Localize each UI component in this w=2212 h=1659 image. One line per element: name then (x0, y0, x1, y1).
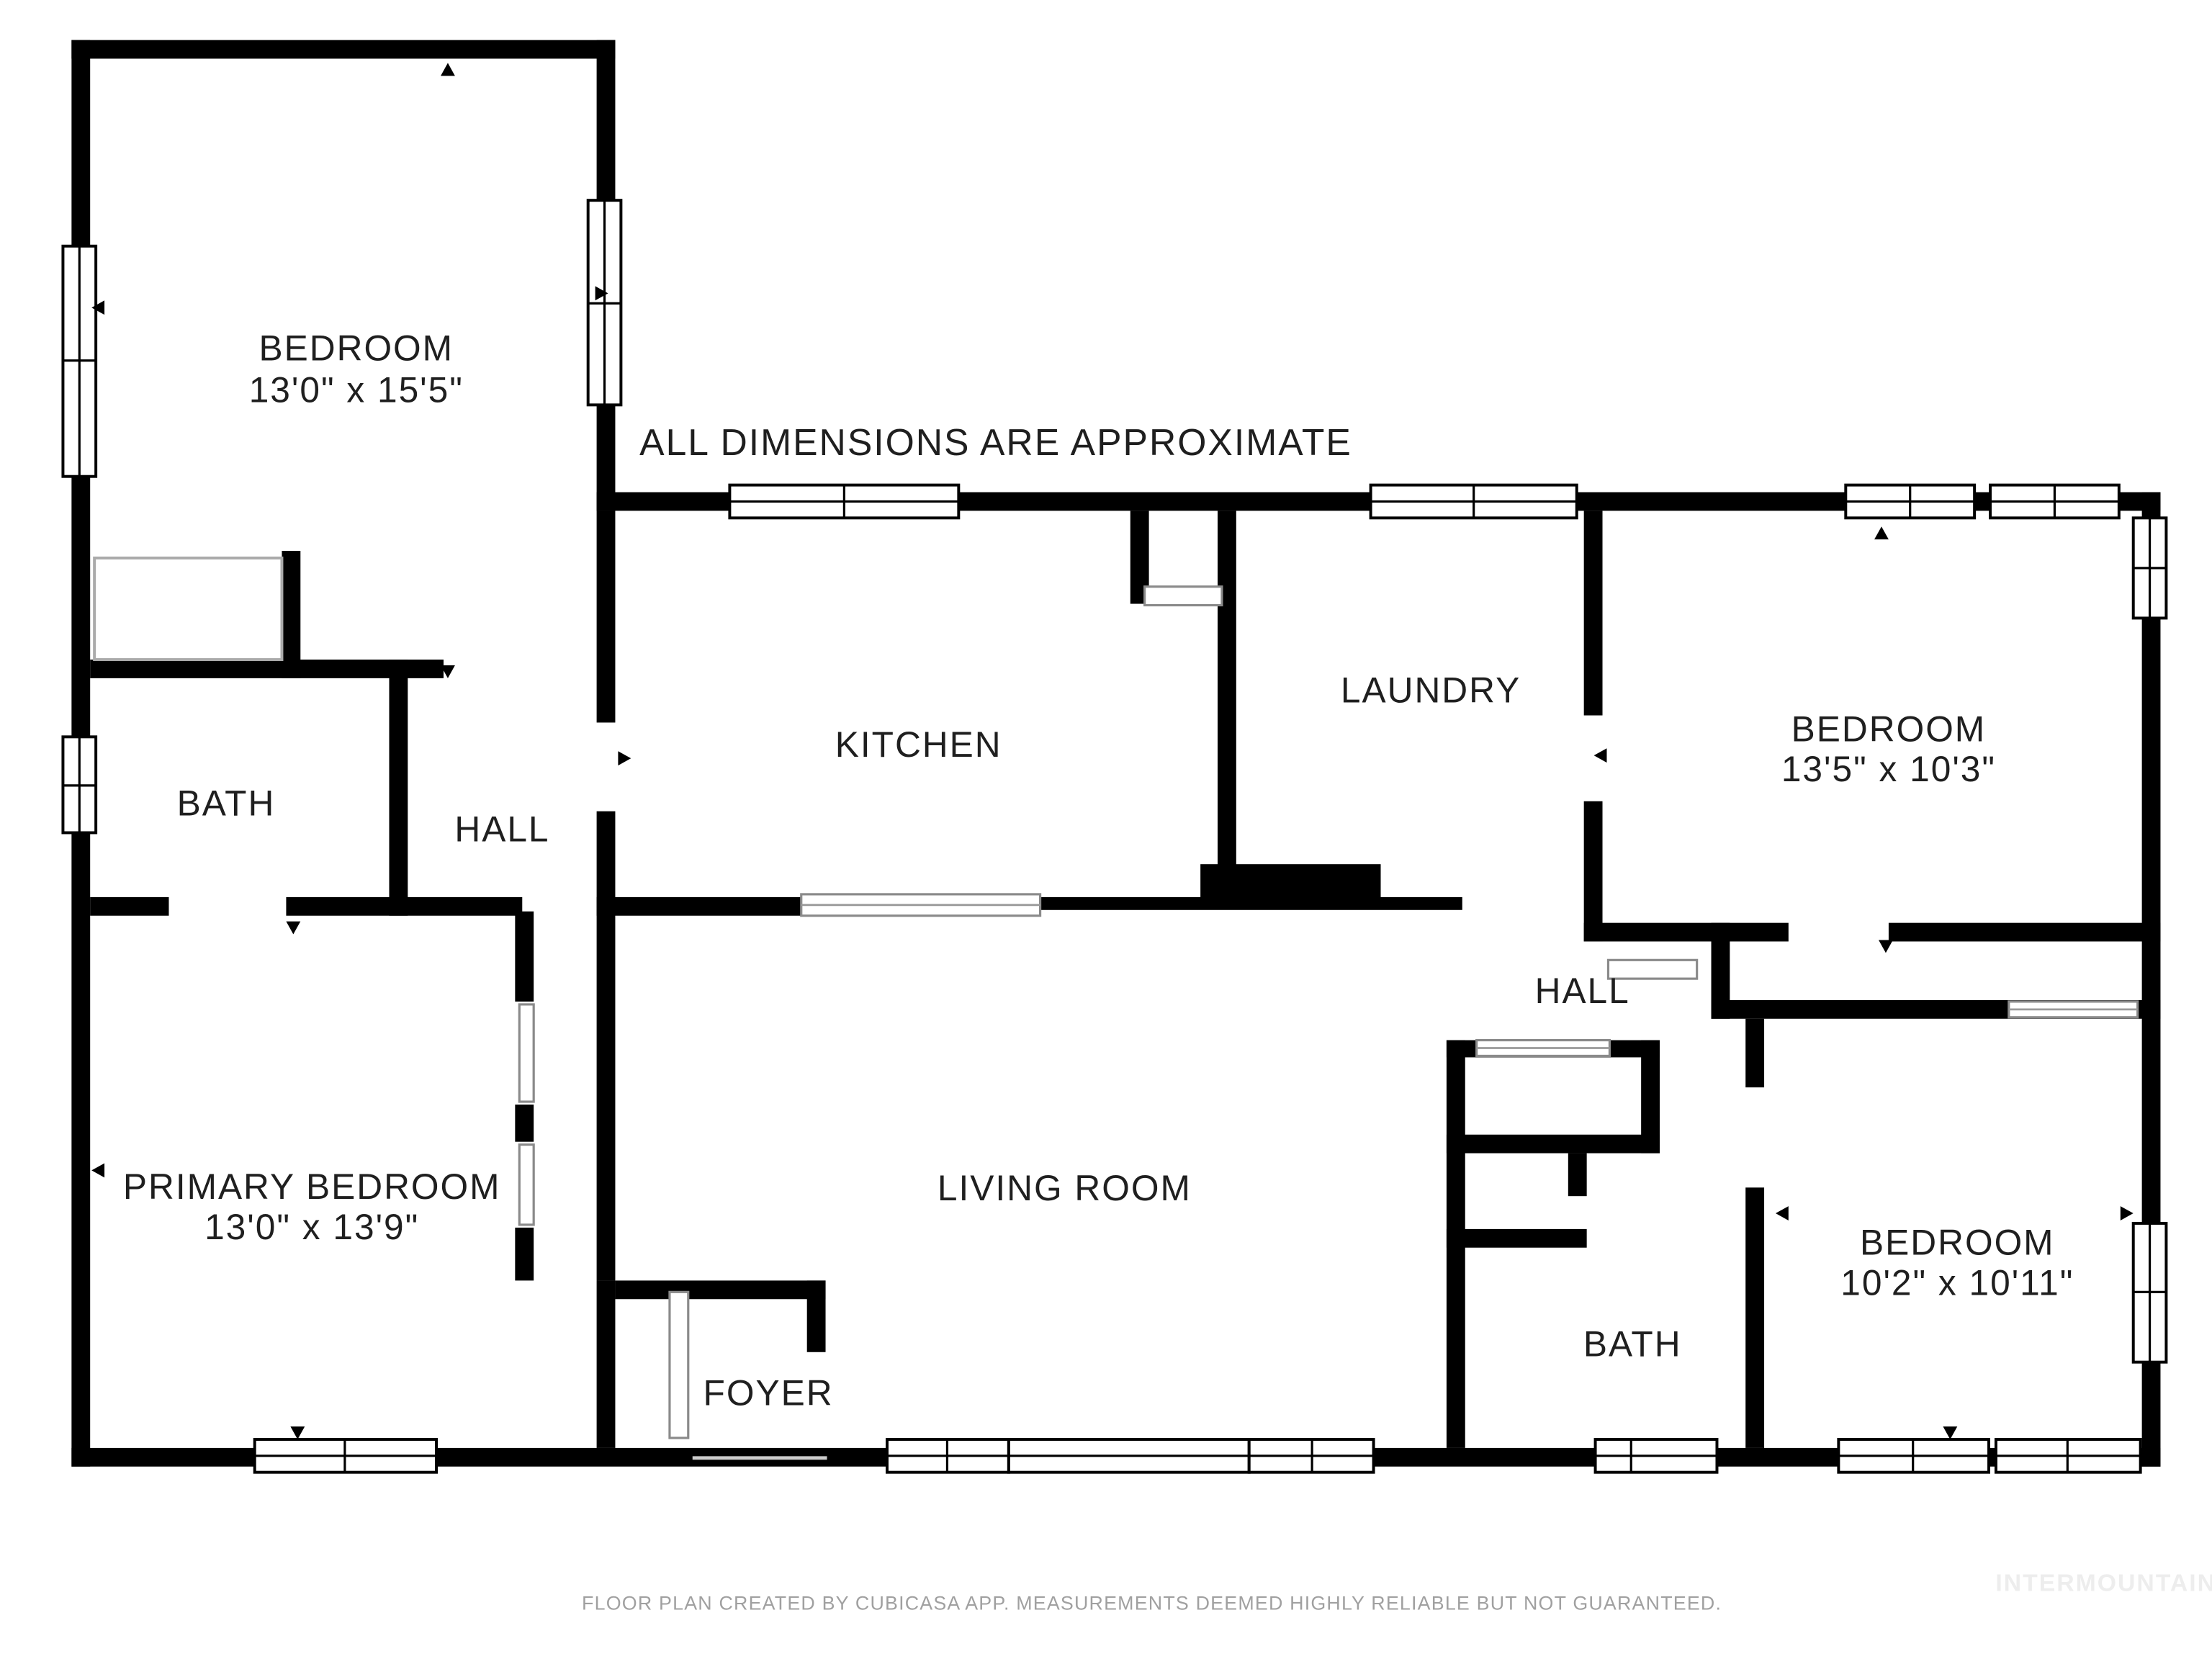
room-dims-bedroom-br: 10'2" x 10'11" (1840, 1262, 2074, 1303)
wall (1200, 864, 1380, 902)
room-label-foyer: FOYER (703, 1372, 834, 1413)
wall (282, 551, 300, 678)
window-icon (1371, 485, 1577, 518)
arrow-down-icon (1943, 1426, 1957, 1439)
pass-through-window (801, 894, 1040, 916)
wall (1889, 923, 2161, 942)
wall (1447, 1135, 1660, 1154)
wall (1218, 511, 1236, 867)
wall (515, 1105, 534, 1142)
footer-disclaimer: FLOOR PLAN CREATED BY CUBICASA APP. MEAS… (582, 1592, 1722, 1614)
room-label-hall-r: HALL (1535, 971, 1630, 1011)
sliding-door-icon (1477, 1040, 1610, 1056)
room-label-laundry: LAUNDRY (1341, 670, 1521, 711)
arrow-left-icon (1594, 748, 1607, 763)
floor-plan-page: ALL DIMENSIONS ARE APPROXIMATE BEDROOM 1… (0, 0, 2212, 1659)
wall (597, 909, 616, 1281)
room-label-bath-r: BATH (1583, 1324, 1682, 1364)
room-label-hall-tl: HALL (454, 809, 549, 849)
wall (597, 897, 801, 916)
wall (90, 897, 168, 916)
wall (1568, 1154, 1587, 1197)
wall (515, 912, 534, 1002)
window-icon (1838, 1439, 1989, 1473)
window-icon (588, 200, 621, 405)
window-icon (63, 246, 96, 477)
arrow-down-icon (290, 1426, 305, 1439)
wall (286, 897, 522, 916)
window-icon (1249, 1439, 1374, 1473)
wall (1584, 801, 1603, 942)
arrow-left-icon (91, 1163, 104, 1177)
wall (1584, 923, 1789, 942)
arrow-left-icon (1776, 1206, 1789, 1220)
arrow-down-icon (1879, 940, 1893, 953)
room-label-primary-bedroom: PRIMARY BEDROOM (123, 1166, 501, 1207)
window-icon (1990, 485, 2119, 518)
brand-watermark: INTERMOUNTAIN (1995, 1570, 2212, 1597)
window-icon (1009, 1439, 1249, 1473)
room-label-bedroom-br: BEDROOM (1860, 1223, 2054, 1263)
room-dims-primary-bedroom: 13'0" x 13'9" (204, 1207, 419, 1247)
arrow-up-icon (441, 63, 455, 76)
wall (807, 1280, 826, 1352)
room-dims-bedroom-tl: 13'0" x 15'5" (249, 369, 464, 410)
window-icon (1845, 485, 1974, 518)
window-icon (1996, 1439, 2141, 1473)
window-icon (2134, 518, 2167, 618)
dimensions-note: ALL DIMENSIONS ARE APPROXIMATE (639, 421, 1352, 463)
room-label-bath-tl: BATH (177, 783, 276, 824)
arrow-up-icon (1874, 526, 1889, 539)
floor-plan: ALL DIMENSIONS ARE APPROXIMATE BEDROOM 1… (0, 0, 2212, 1658)
wall (615, 1280, 825, 1299)
door-leaf-icon (1145, 587, 1222, 606)
window-icon (887, 1439, 1009, 1473)
window-icon (255, 1439, 436, 1473)
sliding-door-icon (2009, 1002, 2138, 1017)
wall (597, 1280, 616, 1447)
window-icon (1596, 1439, 1717, 1473)
room-label-bedroom-tl: BEDROOM (259, 328, 454, 369)
wall (1745, 1019, 1764, 1087)
wall (1447, 1229, 1587, 1248)
arrow-down-icon (286, 922, 300, 935)
window-icon (2134, 1223, 2167, 1362)
door-leaf-icon (670, 1292, 688, 1438)
room-labels: ALL DIMENSIONS ARE APPROXIMATE BEDROOM 1… (123, 328, 2074, 1413)
wall (71, 40, 615, 59)
window-icon (63, 737, 96, 832)
wall (1745, 1187, 1764, 1448)
wall (1584, 511, 1603, 715)
room-label-kitchen: KITCHEN (835, 724, 1002, 765)
closet-outline (94, 558, 282, 660)
window-icon (729, 485, 958, 518)
wall (597, 811, 616, 909)
wall (515, 1228, 534, 1281)
door-leaf-icon (519, 1004, 534, 1102)
room-label-living-room: LIVING ROOM (938, 1168, 1192, 1208)
door-leaf-icon (519, 1145, 534, 1225)
room-dims-bedroom-r: 13'5" x 10'3" (1781, 749, 1996, 789)
arrow-right-icon (2121, 1206, 2134, 1220)
room-label-bedroom-r: BEDROOM (1791, 709, 1986, 749)
wall (597, 511, 616, 722)
wall (389, 660, 408, 916)
arrow-right-icon (618, 751, 631, 765)
